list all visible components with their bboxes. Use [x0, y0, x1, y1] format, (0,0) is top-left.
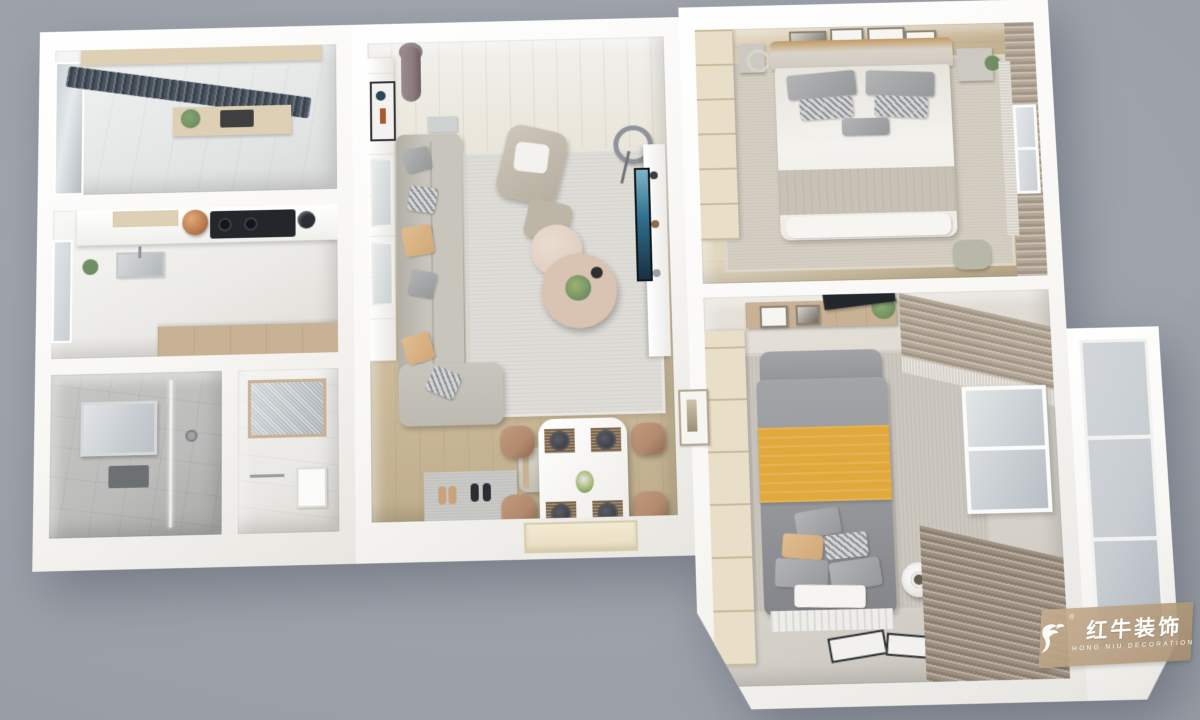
lower-cabinets	[158, 322, 338, 356]
bedroom-window	[961, 385, 1052, 514]
air-purifier-tower	[401, 46, 421, 102]
bed-foot-fold	[786, 213, 952, 238]
pillow-icon	[794, 585, 865, 608]
yellow-throw-blanket	[758, 425, 892, 503]
cooktop	[210, 209, 296, 238]
pillow-icon	[842, 117, 890, 135]
cabinet-glass-door	[370, 158, 392, 227]
bathroom-shower-room	[49, 371, 222, 539]
television	[634, 168, 653, 282]
wardrobe-cabinet	[695, 29, 740, 240]
living-dining-room	[367, 37, 677, 523]
kitchen-window	[52, 240, 73, 343]
shower-glass-partition	[169, 380, 173, 527]
pillow-icon	[401, 224, 435, 258]
bed-runner-blanket	[778, 166, 956, 215]
plate-icon	[551, 503, 572, 522]
east-wing-walls	[678, 0, 1087, 711]
bull-icon	[1036, 621, 1068, 657]
dining-chair	[633, 491, 668, 523]
bedroom-window	[1012, 104, 1041, 194]
slippers-icon	[438, 486, 446, 504]
sofa-side-table	[427, 116, 457, 132]
second-bedroom-room	[703, 289, 1070, 687]
slippers-icon	[448, 486, 456, 504]
pillow-icon	[407, 185, 439, 214]
cabinet-glass-door	[371, 242, 394, 306]
wash-basin	[296, 467, 327, 508]
master-bedroom-room	[695, 22, 1048, 284]
brand-name-cn: 红牛装饰	[1086, 616, 1183, 642]
dining-chair	[631, 422, 666, 455]
plate-icon	[597, 502, 618, 522]
slippers-icon	[470, 483, 478, 501]
pillow-icon	[782, 533, 824, 561]
shelf-frame-icon	[760, 306, 789, 328]
bedroom-stool	[952, 240, 991, 270]
pillow-icon	[799, 96, 854, 121]
bath-mat	[108, 465, 149, 488]
hallway-art-frame	[678, 389, 710, 446]
herb-plant-icon	[82, 259, 98, 275]
window-mullion	[1085, 434, 1154, 440]
burner-icon	[218, 218, 232, 232]
kitchen-room	[51, 204, 338, 359]
entry-door	[524, 520, 638, 553]
slippers-icon	[483, 483, 491, 501]
north-balcony-room	[53, 44, 337, 195]
dining-chair	[501, 494, 536, 522]
vanity-mirror	[248, 378, 327, 438]
registered-mark: ®	[1069, 614, 1075, 621]
pillow-icon	[824, 531, 869, 560]
window-mullion	[1091, 536, 1160, 542]
bed-base-slats	[770, 608, 893, 632]
towel-bar-icon	[250, 474, 284, 478]
pillow-icon	[874, 95, 928, 119]
faucet-icon	[138, 246, 141, 258]
leaning-frame-icon	[827, 629, 888, 663]
render-canvas: ® 红牛装饰 HONG NIU DECORATION	[0, 0, 1200, 720]
wall-art-frame	[370, 81, 396, 141]
balcony-cabinet-top	[81, 45, 323, 66]
shelf-frame-icon	[795, 305, 820, 325]
apartment-floorplan	[30, 0, 1185, 720]
pillow-icon	[866, 70, 935, 97]
dining-chair	[500, 425, 535, 458]
brand-watermark: ® 红牛装饰 HONG NIU DECORATION	[1039, 602, 1194, 668]
center-wing-walls	[352, 17, 696, 564]
burner-icon	[244, 217, 258, 231]
west-wing-walls	[32, 25, 356, 572]
pillow-icon	[513, 141, 550, 174]
bathroom-vanity-room	[238, 368, 339, 534]
desk-device	[220, 109, 254, 127]
bathroom-window	[80, 400, 157, 456]
floor-drain-icon	[185, 430, 197, 442]
counter-cutting-board	[113, 210, 179, 227]
